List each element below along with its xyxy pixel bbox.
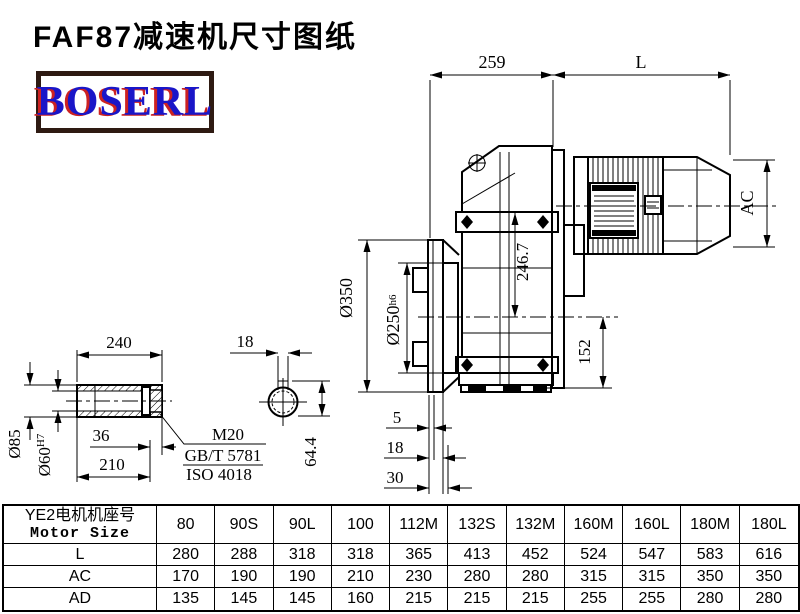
table-cell: 318 [332, 544, 390, 566]
table-cell: 255 [565, 588, 623, 610]
table-cell: 215 [390, 588, 448, 610]
table-cell: 280 [157, 544, 215, 566]
dim-240: 240 [106, 333, 132, 352]
table-cell: 350 [681, 566, 739, 588]
dim-350: Ø350 [336, 278, 356, 318]
shaft-detail-view: 240 Ø85 Ø60H7 36 210 M20 GB/T 5781 ISO 4… [5, 333, 266, 484]
drawing-page: FAF87减速机尺寸图纸 BOSERL 259 L [0, 0, 800, 614]
table-cell: 280 [681, 588, 739, 610]
dim-key-18: 18 [237, 332, 254, 351]
dim-60H7: Ø60H7 [35, 433, 54, 476]
table-cell: 215 [448, 588, 506, 610]
dim-30: 30 [387, 468, 404, 487]
table-cell: 547 [623, 544, 681, 566]
row-label-L: L [4, 544, 157, 566]
table-cell: 315 [565, 566, 623, 588]
output-flange-view [413, 240, 459, 494]
col-header: 160M [565, 506, 623, 544]
stator-laminations [594, 196, 634, 226]
table-cell: 170 [157, 566, 215, 588]
dim-L: L [636, 52, 647, 72]
dim-246-7: 246.7 [513, 242, 532, 281]
table-cell: 190 [215, 566, 273, 588]
motor-size-table: YE2电机机座号 Motor Size 80 90S 90L 100 112M … [2, 504, 800, 612]
col-header: 80 [157, 506, 215, 544]
table-cell: 315 [623, 566, 681, 588]
col-header: 100 [332, 506, 390, 544]
table-header-motor-size: YE2电机机座号 Motor Size [4, 506, 157, 544]
table-cell: 583 [681, 544, 739, 566]
flange-dims: Ø350 Ø250h6 5 18 30 [336, 240, 472, 488]
col-header: 132M [507, 506, 565, 544]
dim-85: Ø85 [5, 429, 24, 458]
col-header: 132S [448, 506, 506, 544]
dim-250h6: Ø250h6 [383, 294, 403, 346]
label-gbt-5781: GB/T 5781 [185, 446, 262, 465]
col-header: 180L [740, 506, 798, 544]
table-cell: 318 [274, 544, 332, 566]
table-cell: 255 [623, 588, 681, 610]
technical-drawing: 259 L [0, 0, 800, 505]
col-header: 90L [274, 506, 332, 544]
table-cell: 160 [332, 588, 390, 610]
table-cell: 524 [565, 544, 623, 566]
label-iso-4018: ISO 4018 [186, 465, 252, 484]
dim-210: 210 [99, 455, 125, 474]
col-header: 180M [681, 506, 739, 544]
table-cell: 145 [215, 588, 273, 610]
dim-top-group: 259 L [430, 52, 730, 238]
table-cell: 413 [448, 544, 506, 566]
table-cell: 616 [740, 544, 798, 566]
dim-AC: AC [737, 190, 757, 215]
dim-5: 5 [393, 408, 402, 427]
col-header: 112M [390, 506, 448, 544]
table-cell: 280 [448, 566, 506, 588]
table-cell: 145 [274, 588, 332, 610]
table-cell: 215 [507, 588, 565, 610]
table-cell: 230 [390, 566, 448, 588]
table-header-cn: YE2电机机座号 [25, 507, 135, 525]
table-cell: 365 [390, 544, 448, 566]
col-header: 90S [215, 506, 273, 544]
table-cell: 280 [507, 566, 565, 588]
dim-64-4: 64.4 [301, 437, 320, 467]
dim-18-flange: 18 [387, 438, 404, 457]
row-label-AD: AD [4, 588, 157, 610]
table-cell: 288 [215, 544, 273, 566]
dim-152: 152 [575, 339, 594, 365]
table-cell: 350 [740, 566, 798, 588]
table-header-en: Motor Size [30, 525, 130, 542]
label-m20: M20 [212, 425, 244, 444]
dim-259: 259 [479, 52, 506, 72]
table-cell: 210 [332, 566, 390, 588]
table-cell: 135 [157, 588, 215, 610]
table-cell: 452 [507, 544, 565, 566]
row-label-AC: AC [4, 566, 157, 588]
dim-36: 36 [93, 426, 110, 445]
table-cell: 190 [274, 566, 332, 588]
col-header: 160L [623, 506, 681, 544]
table-cell: 280 [740, 588, 798, 610]
